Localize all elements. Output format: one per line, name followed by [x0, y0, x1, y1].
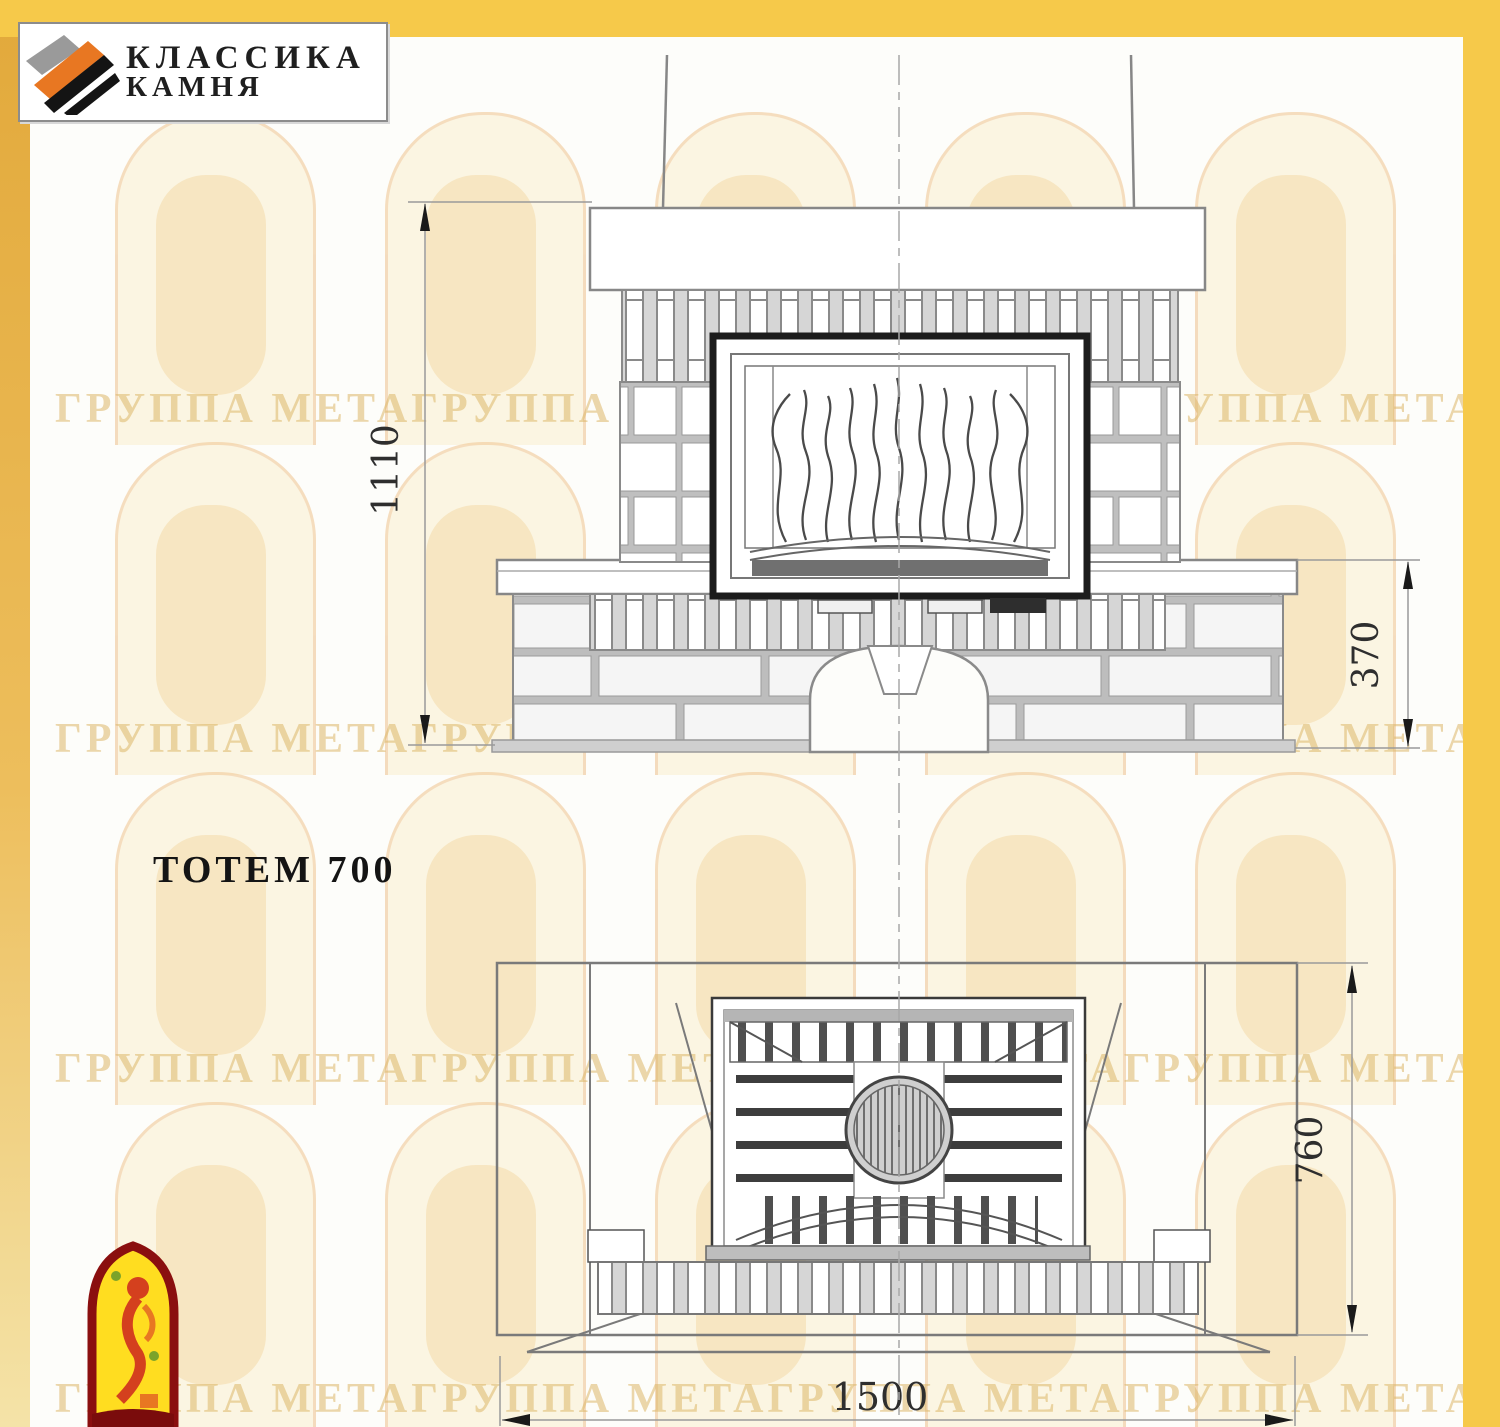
logo-line-2: КАМНЯ [126, 74, 366, 102]
firebox [713, 336, 1087, 613]
stone-base [492, 594, 1295, 752]
brick-column-right [1083, 382, 1180, 562]
company-logo: КЛАССИКА КАМНЯ [18, 22, 388, 122]
firebox-louver [752, 560, 1048, 576]
dim-base-height-label: 370 [1346, 621, 1387, 690]
base-dentil-row [590, 594, 1165, 650]
front-elevation-drawing: 1110 370 [366, 55, 1420, 752]
model-title: ТОТЕМ 700 [153, 848, 396, 892]
logo-line-1: КЛАССИКА [126, 43, 366, 74]
page: ГРУППА МЕТАГРУППА МЕТАГРУППА МЕТАГРУППА … [0, 0, 1500, 1427]
dim-plan-depth-label: 760 [1290, 1116, 1331, 1185]
stone-classic-logo-icon [20, 29, 120, 115]
right-border-bar [1463, 0, 1500, 1427]
dimension-base-height: 370 [1295, 560, 1420, 748]
chimney-line-left [663, 55, 667, 208]
jester-arch-emblem-icon [82, 1236, 184, 1427]
mantel-shelf [590, 208, 1205, 290]
dim-plan-width-label: 1500 [832, 1375, 929, 1419]
company-logo-text: КЛАССИКА КАМНЯ [126, 43, 366, 102]
brick-column-left [620, 382, 717, 562]
dimension-plan-depth: 760 [1290, 963, 1368, 1335]
plan-dentil-row [598, 1262, 1198, 1314]
plan-firebox [706, 998, 1090, 1260]
left-border-bar [0, 0, 30, 1427]
corner-emblem [82, 1236, 184, 1427]
dim-front-height-label: 1110 [366, 424, 407, 516]
chimney-line-right [1131, 55, 1134, 208]
top-plan-drawing: 760 1500 [497, 963, 1368, 1426]
technical-drawing: 1110 370 [0, 0, 1500, 1427]
dimension-plan-width: 1500 [500, 1356, 1295, 1426]
